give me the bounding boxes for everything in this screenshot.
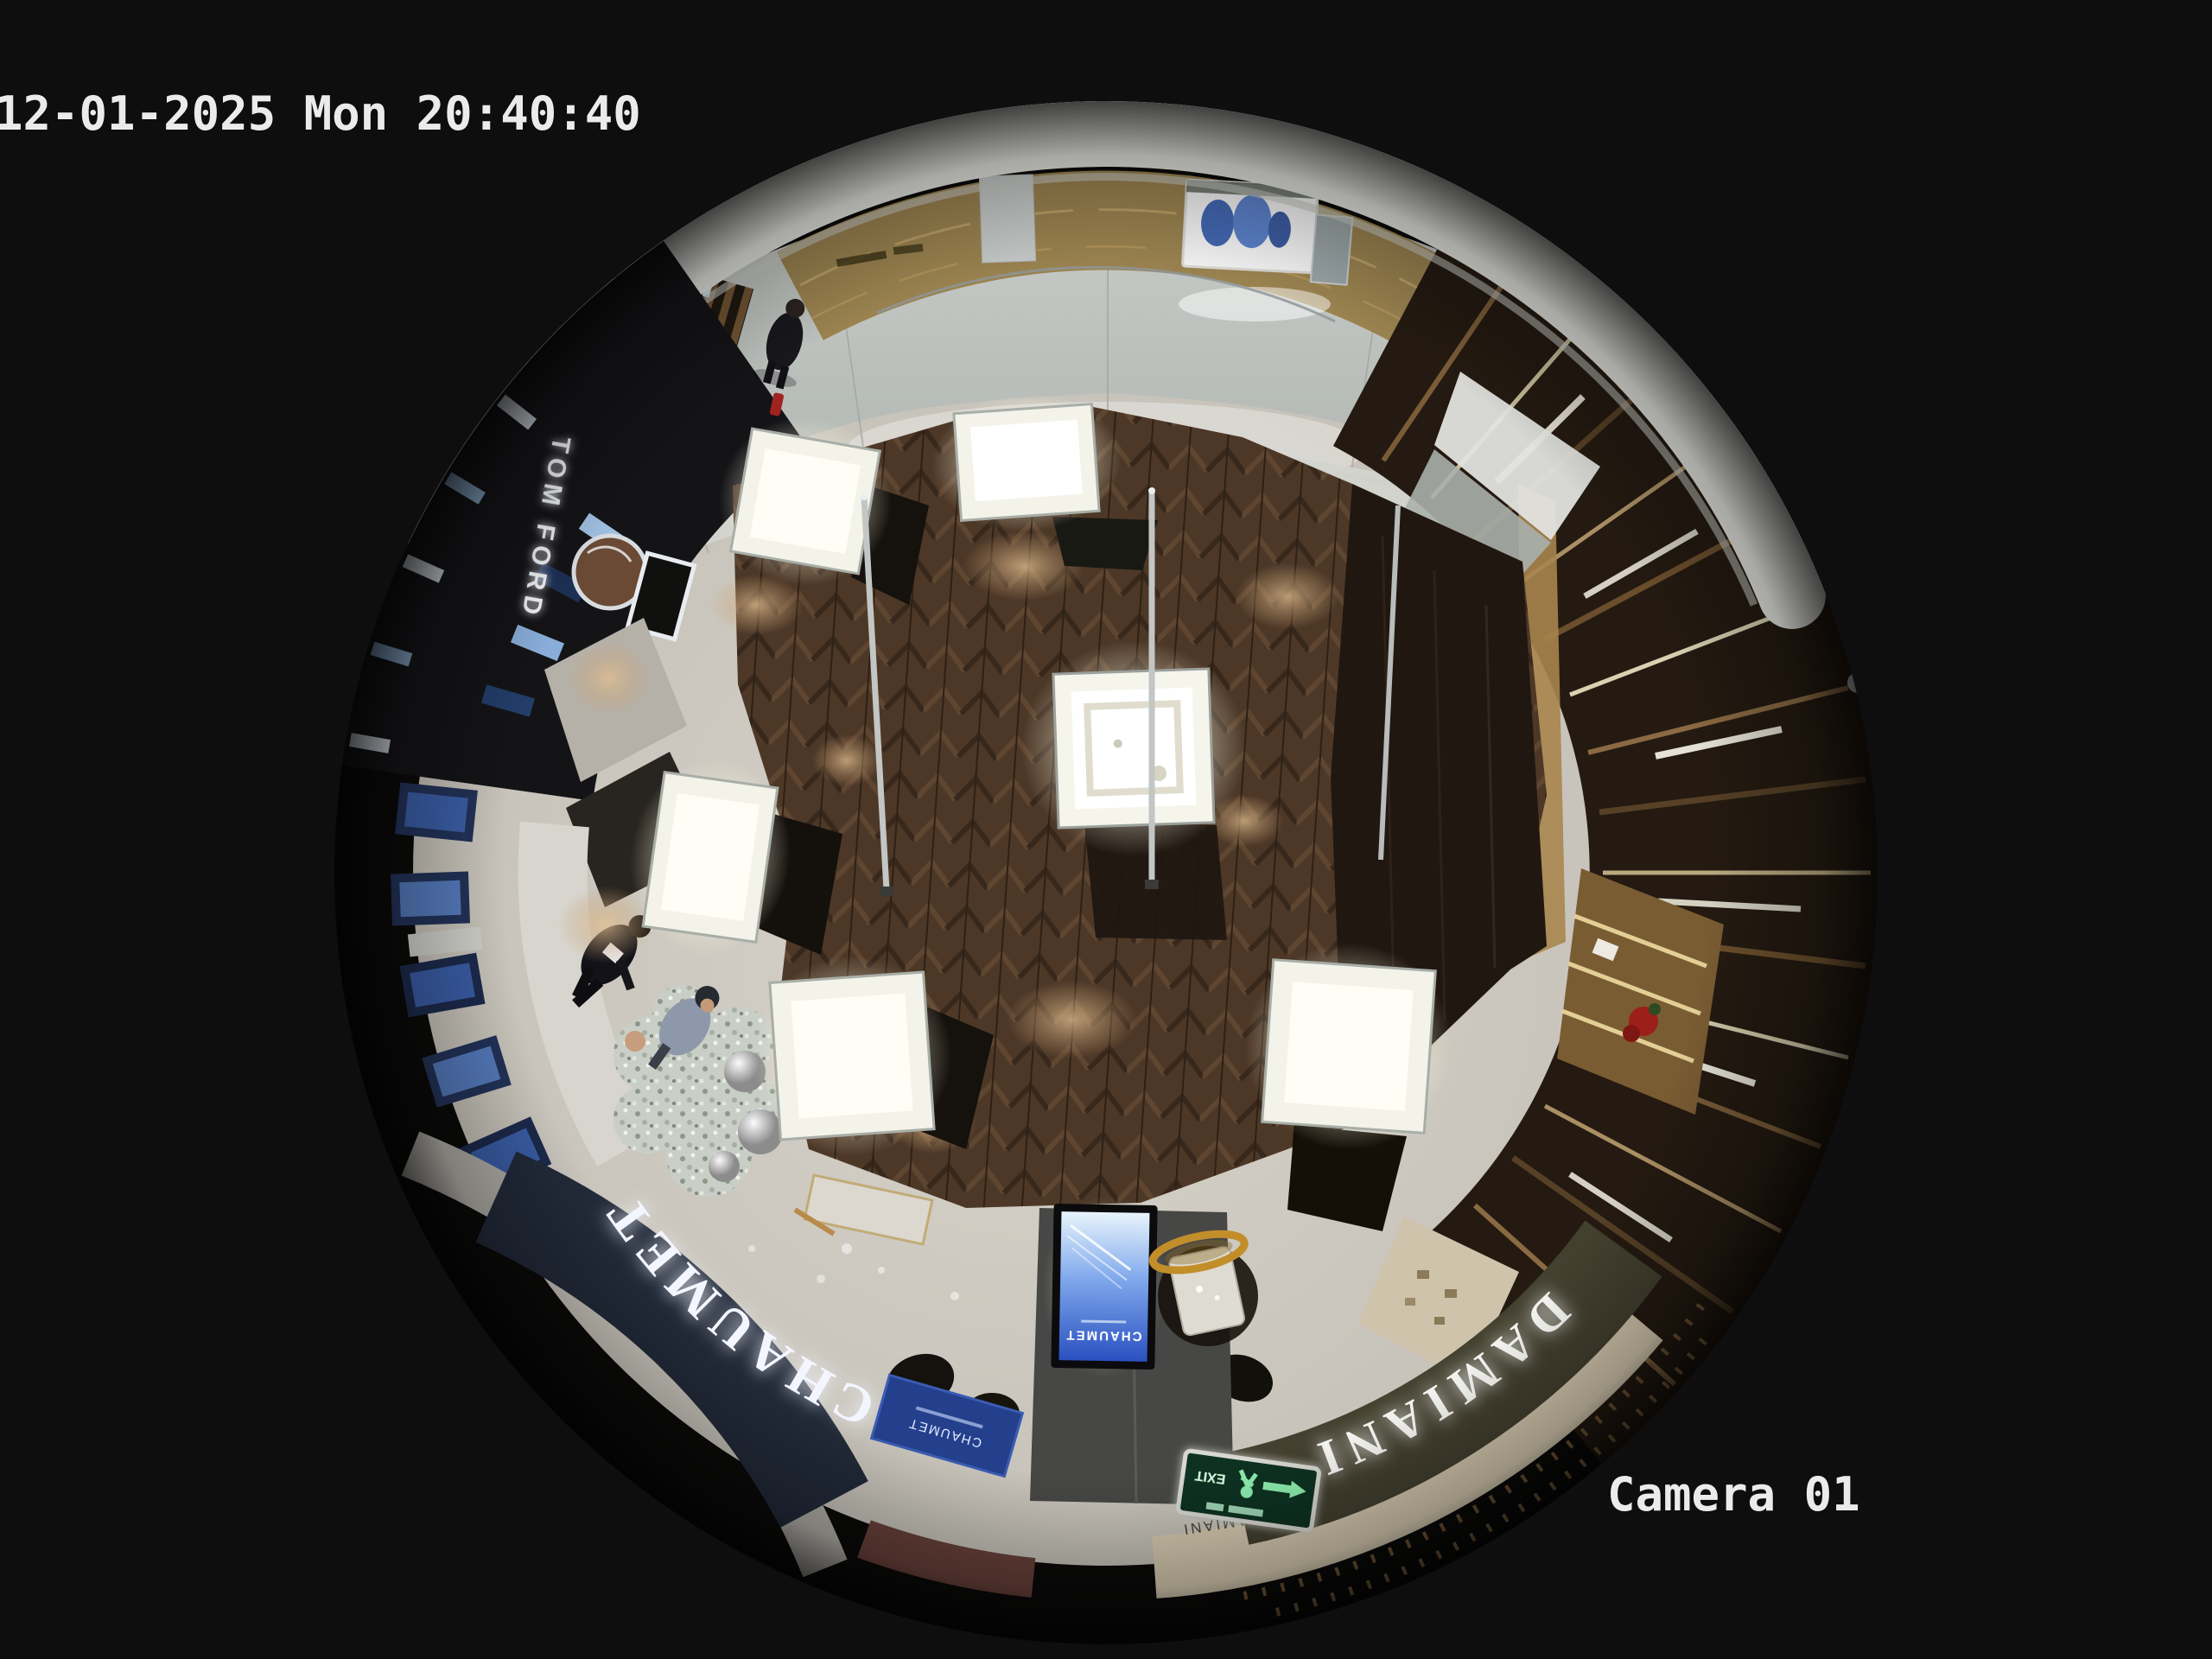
fisheye-scene: TOM FORD: [334, 101, 1878, 1644]
cctv-frame: TOM FORD: [0, 0, 2212, 1659]
osd-timestamp: 12-01-2025 Mon 20:40:40: [0, 86, 641, 141]
vignette: [334, 101, 1878, 1644]
osd-camera-label: Camera 01: [1607, 1467, 1860, 1522]
fisheye-video-frame: TOM FORD: [0, 0, 2212, 1659]
